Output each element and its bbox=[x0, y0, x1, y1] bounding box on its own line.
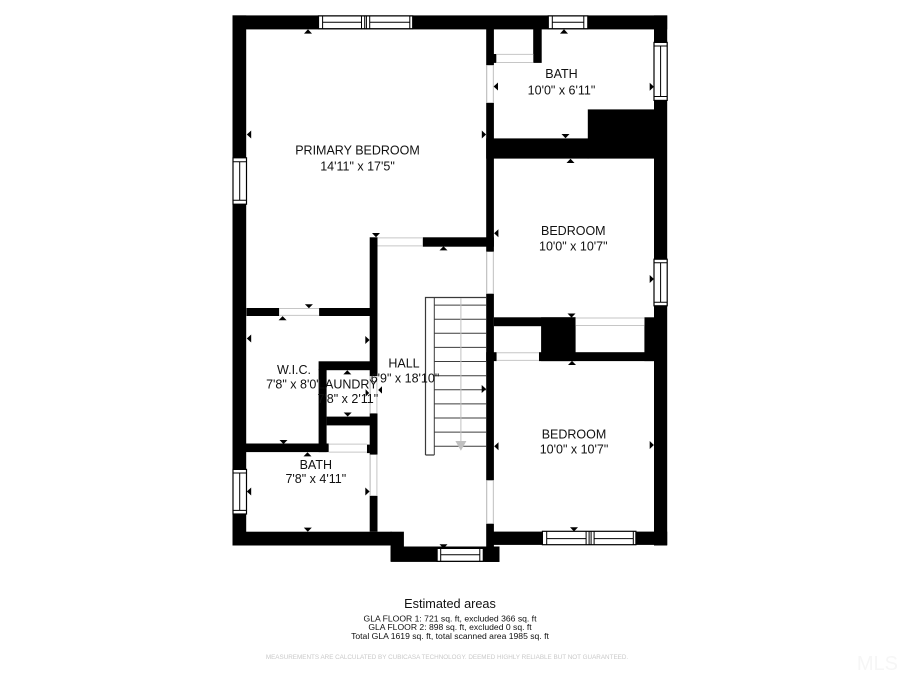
svg-text:BATH: BATH bbox=[300, 458, 332, 472]
svg-text:7'8" x 2'11": 7'8" x 2'11" bbox=[317, 392, 378, 406]
svg-text:6'9" x 18'10": 6'9" x 18'10" bbox=[371, 372, 440, 386]
svg-text:HALL: HALL bbox=[388, 356, 419, 370]
svg-text:Total GLA 1619 sq. ft, total s: Total GLA 1619 sq. ft, total scanned are… bbox=[351, 631, 549, 641]
svg-text:MLS: MLS bbox=[857, 653, 898, 675]
svg-text:14'11" x 17'5": 14'11" x 17'5" bbox=[320, 160, 395, 174]
svg-text:W.I.C.: W.I.C. bbox=[277, 363, 311, 377]
svg-text:Estimated areas: Estimated areas bbox=[404, 597, 496, 611]
svg-text:10'0" x 10'7": 10'0" x 10'7" bbox=[540, 442, 609, 456]
svg-text:7'8" x 4'11": 7'8" x 4'11" bbox=[285, 472, 346, 486]
svg-text:7'8" x 8'0": 7'8" x 8'0" bbox=[266, 377, 321, 391]
svg-text:10'0" x 6'11": 10'0" x 6'11" bbox=[528, 83, 596, 97]
svg-text:BEDROOM: BEDROOM bbox=[541, 224, 606, 238]
svg-text:MEASUREMENTS ARE CALCULATED BY: MEASUREMENTS ARE CALCULATED BY CUBICASA … bbox=[266, 654, 629, 661]
svg-text:PRIMARY BEDROOM: PRIMARY BEDROOM bbox=[295, 144, 420, 158]
svg-text:BATH: BATH bbox=[545, 67, 577, 81]
svg-text:BEDROOM: BEDROOM bbox=[542, 428, 607, 442]
svg-text:10'0" x 10'7": 10'0" x 10'7" bbox=[539, 239, 608, 253]
svg-text:LAUNDRY: LAUNDRY bbox=[318, 378, 378, 392]
